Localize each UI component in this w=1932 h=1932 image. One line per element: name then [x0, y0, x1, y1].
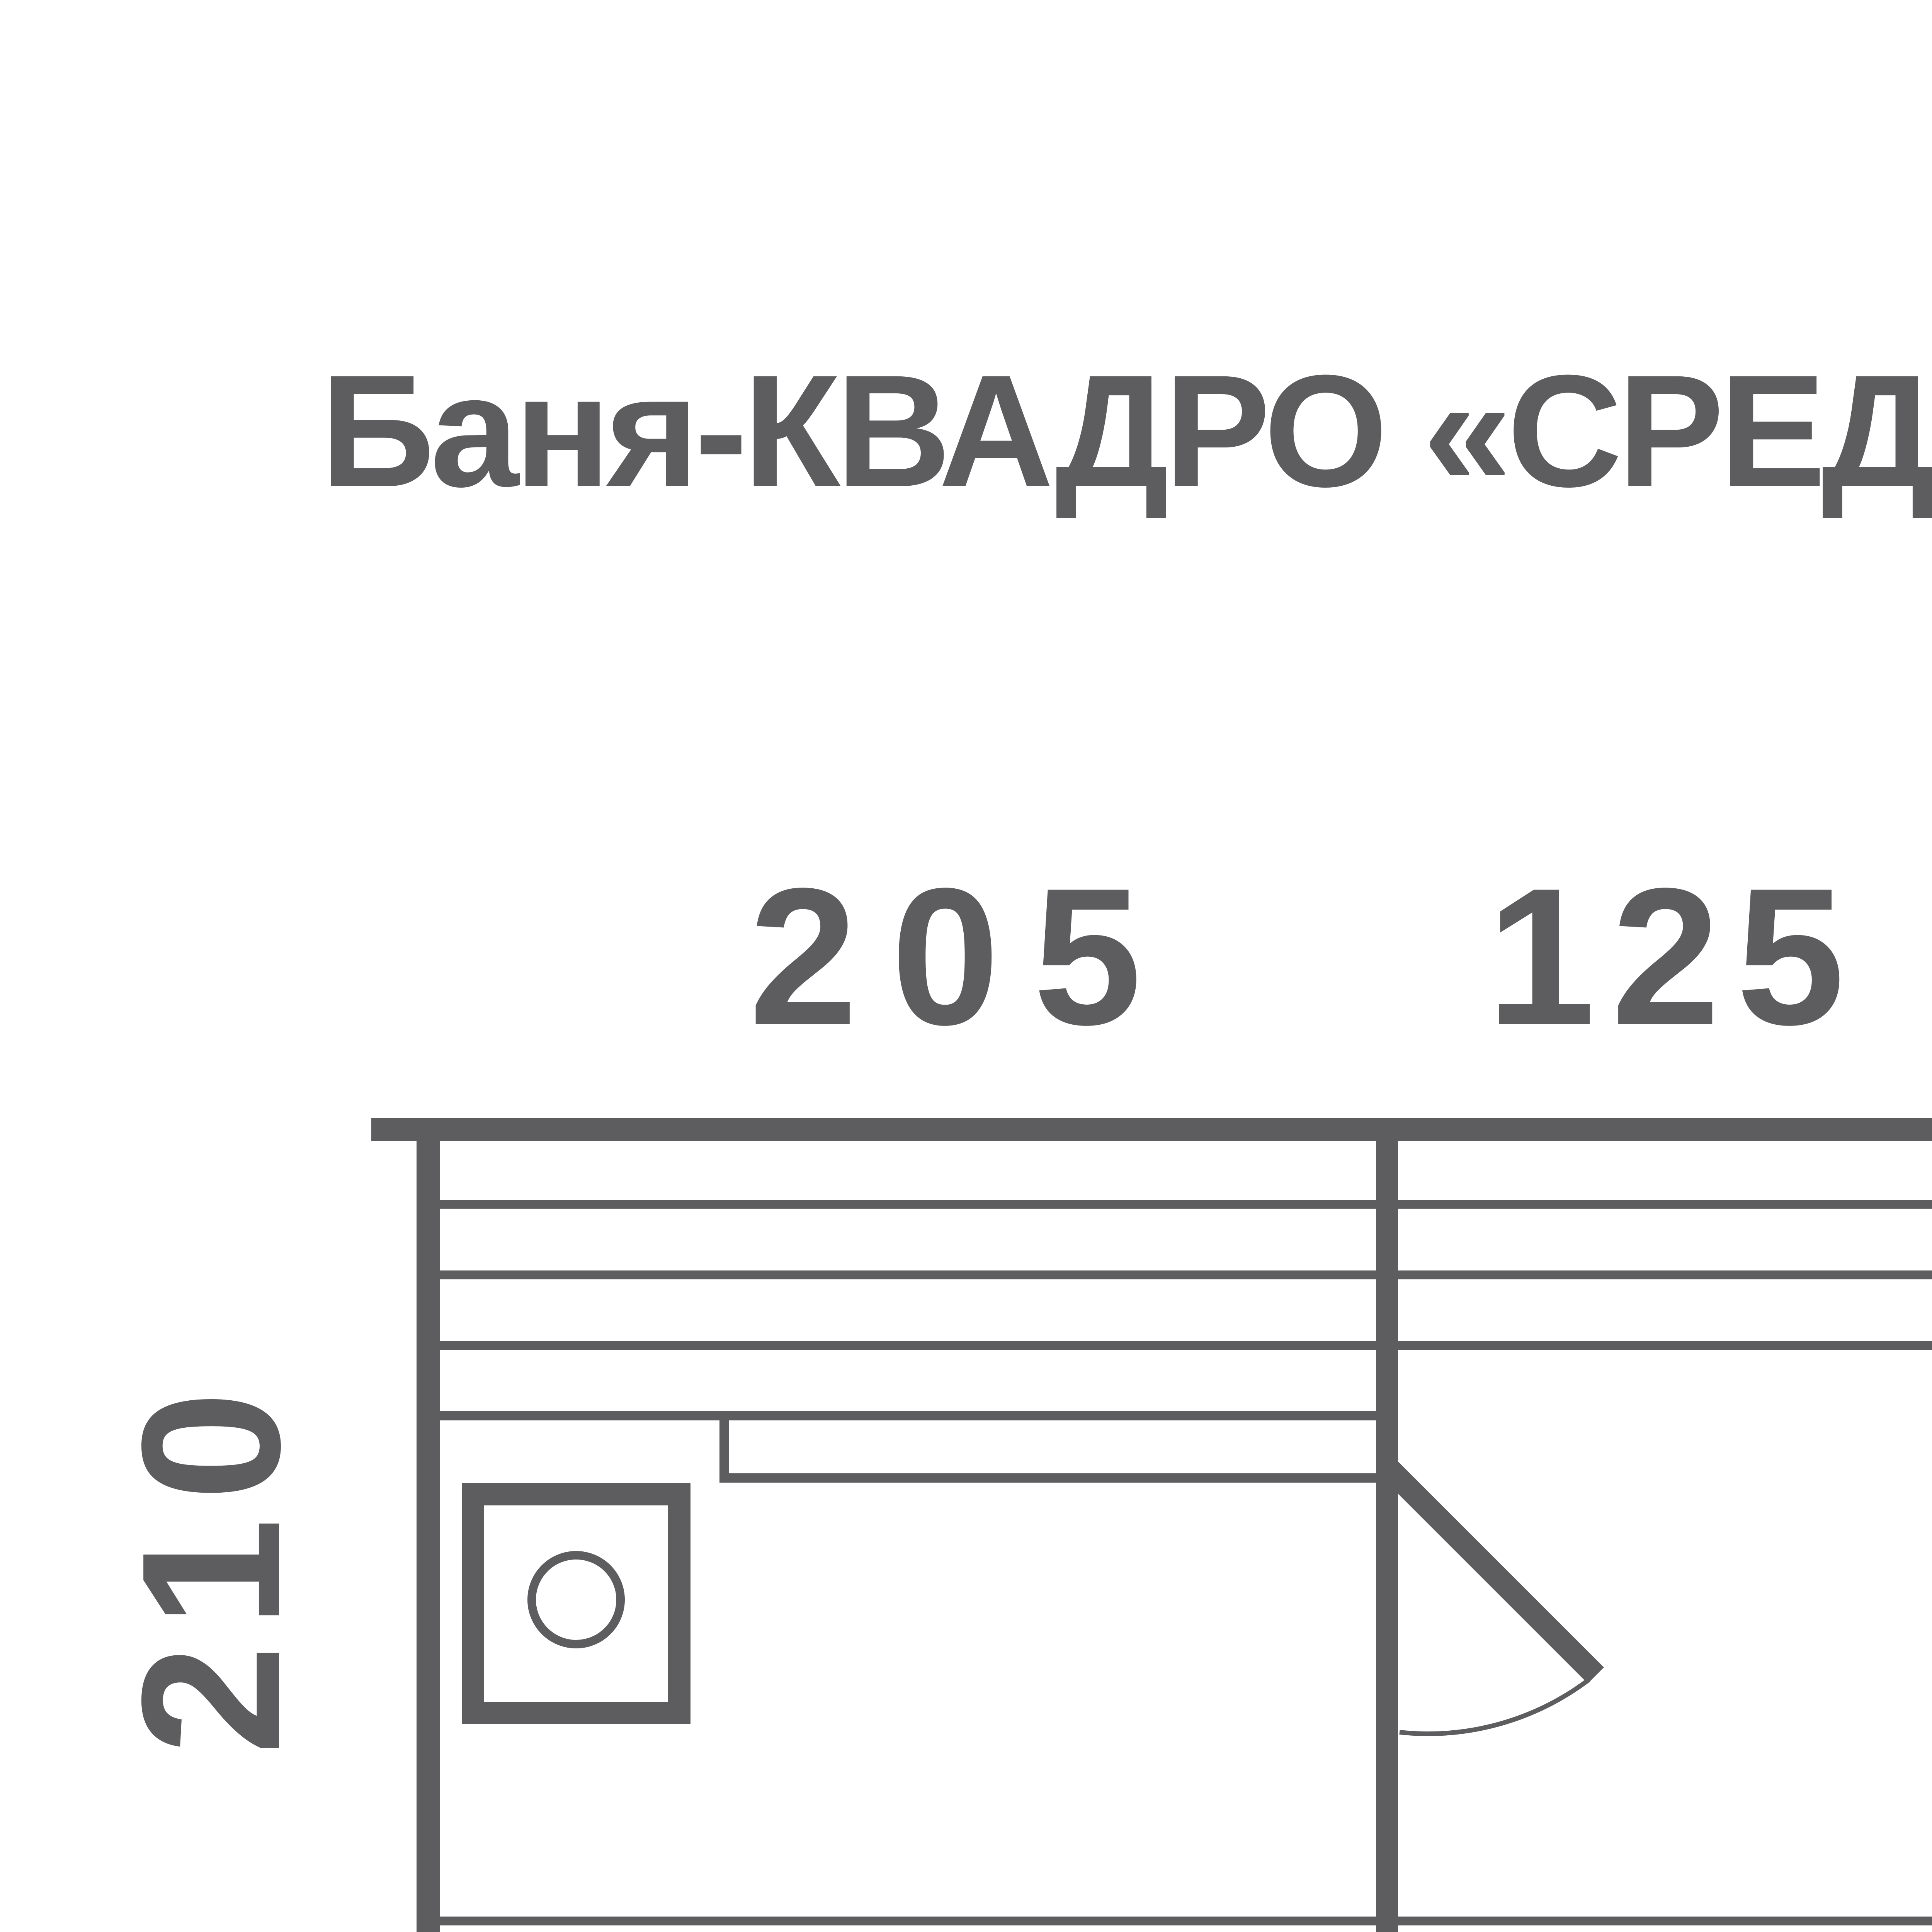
svg-text:Баня-КВАДРО «СРЕДНЯЯ»: Баня-КВАДРО «СРЕДНЯЯ»: [320, 342, 1932, 520]
svg-text:210: 210: [101, 1374, 321, 1755]
svg-text:125: 125: [1487, 848, 1861, 1066]
svg-text:205: 205: [749, 848, 1175, 1066]
